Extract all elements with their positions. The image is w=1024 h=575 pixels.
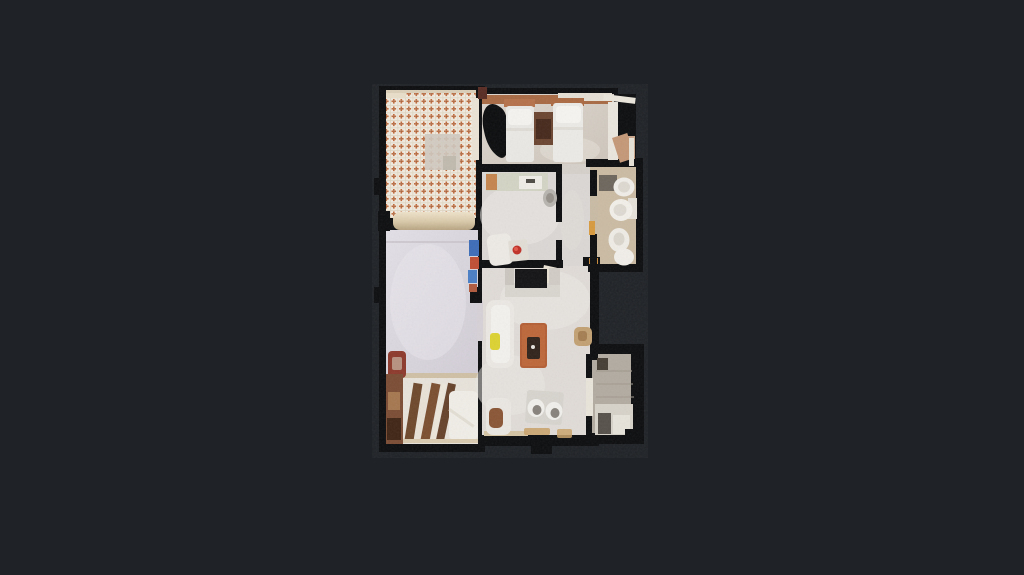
scan-grain-overlay <box>372 84 648 458</box>
dollhouse-viewer-canvas[interactable] <box>0 0 1024 575</box>
floorplan-elements-group <box>372 84 648 458</box>
floorplan-dollhouse-view[interactable] <box>0 0 1024 575</box>
